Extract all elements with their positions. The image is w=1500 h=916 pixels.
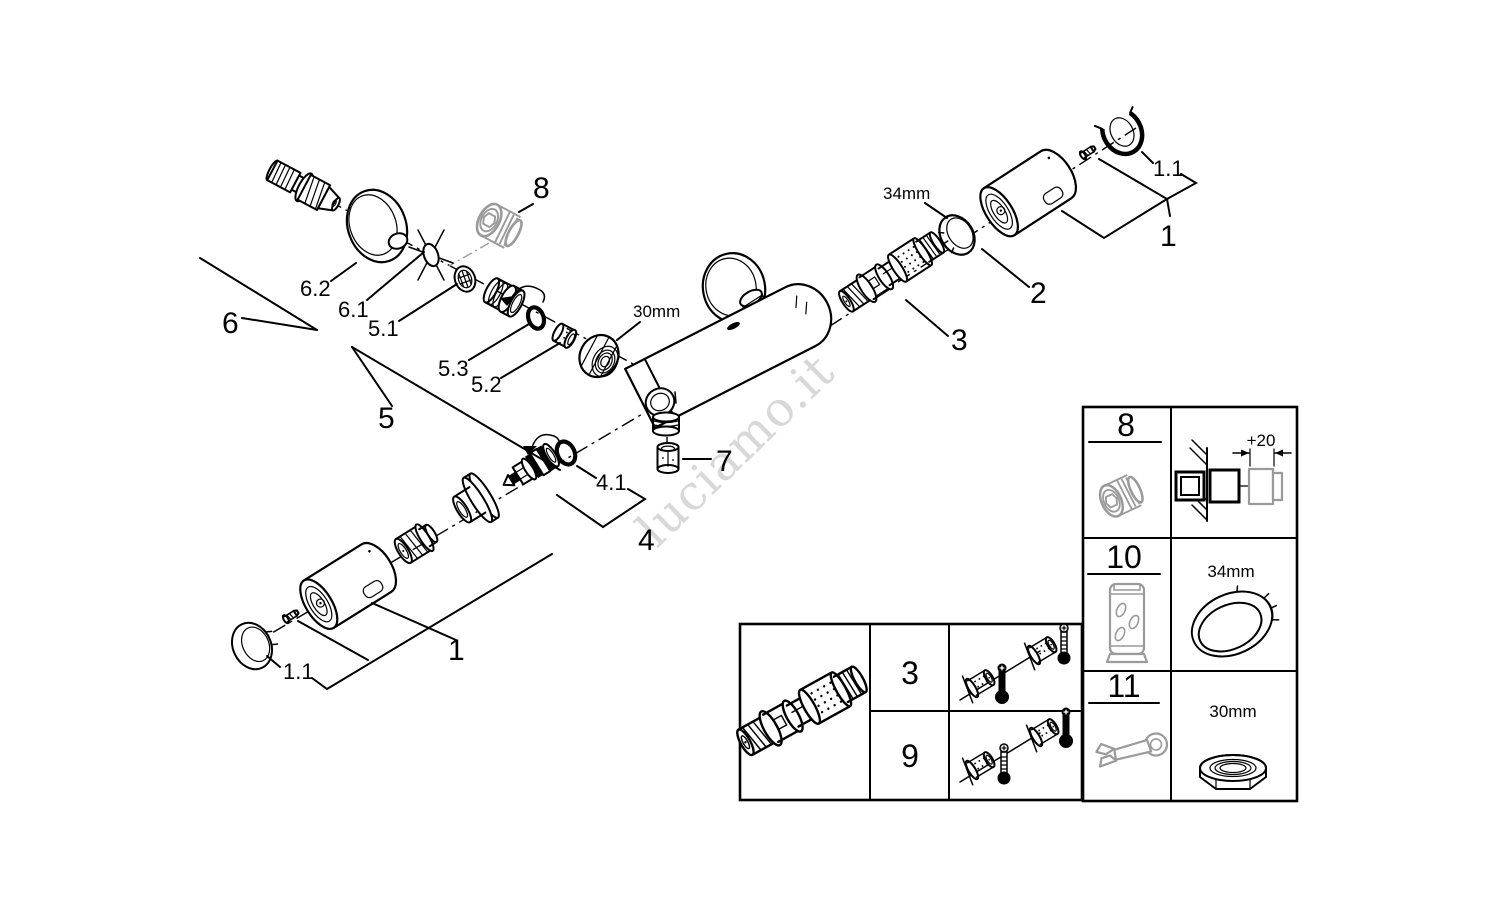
callout-2: 2 (1030, 277, 1047, 310)
tool-10-label: 10 (1106, 539, 1142, 575)
thermometer-cold-icon (1058, 624, 1071, 665)
open-end-wrench-icon (1095, 732, 1169, 767)
seal-cross-6-1 (409, 230, 453, 280)
s-union-6 (262, 155, 345, 219)
nut-size-30mm: 30mm (1209, 702, 1256, 721)
threaded-adapter-5 (480, 275, 528, 319)
cartridge-orientation-icon (1022, 712, 1063, 752)
dimension-plus20: +20 (1247, 431, 1276, 450)
tools-table: 8 +20 10 (1083, 407, 1297, 801)
extension-mounting-diagram: +20 (1176, 431, 1291, 521)
thermostat-cartridge-icon (732, 661, 872, 762)
dimension-34mm: 34mm (883, 184, 930, 203)
handle-screw-top (1079, 144, 1097, 160)
callout-6-1: 6.1 (338, 297, 369, 322)
dimension-30mm: 30mm (633, 302, 680, 321)
callout-4-1: 4.1 (596, 470, 627, 495)
callout-3: 3 (951, 324, 968, 357)
callout-1-bottom: 1 (448, 634, 465, 667)
callout-5-1: 5.1 (368, 316, 399, 341)
callout-1-1-bottom: 1.1 (283, 659, 314, 684)
thermometer-cold-icon (998, 744, 1011, 785)
thermostat-cartridge-3 (834, 227, 948, 317)
cap-bottom-1-1 (225, 614, 284, 676)
variant-9-diagram (958, 708, 1073, 785)
callout-7: 7 (716, 445, 733, 478)
o-ring-5-3 (525, 305, 547, 331)
cartridge-orientation-icon (1020, 630, 1061, 670)
diagram-canvas: luciamo.it (0, 0, 1500, 916)
check-valve-7 (658, 443, 679, 473)
thermometer-hot-icon (1059, 708, 1073, 749)
union-nut-30mm-icon (1200, 755, 1266, 789)
extension-fitting-icon (1096, 473, 1147, 520)
socket-size-34mm: 34mm (1207, 562, 1254, 581)
callout-6-2: 6.2 (300, 276, 331, 301)
union-nut-30mm (572, 328, 627, 384)
socket-tool-icon (1107, 584, 1147, 662)
variant-3-diagram (958, 624, 1070, 704)
callout-6: 6 (222, 307, 239, 340)
tool-8-label: 8 (1117, 407, 1135, 443)
callout-4: 4 (638, 524, 655, 557)
callout-1-top: 1 (1160, 220, 1177, 253)
callout-5-3: 5.3 (438, 356, 469, 381)
callout-5-2: 5.2 (471, 372, 502, 397)
handle-sleeve-top (973, 143, 1084, 242)
stop-ring-34mm-icon (1180, 575, 1288, 669)
exploded-parts-diagram: luciamo.it (0, 0, 1500, 916)
cartridge-variant-table: 3 9 (732, 624, 1082, 800)
callout-5: 5 (378, 402, 395, 435)
variant-9-label: 9 (901, 738, 919, 774)
callout-1-1-top: 1.1 (1153, 156, 1184, 181)
callout-8: 8 (533, 172, 550, 205)
handle-sleeve-bottom (293, 536, 404, 634)
tool-11-label: 11 (1107, 668, 1140, 704)
extension-part-8 (472, 200, 526, 251)
thermometer-hot-icon (995, 664, 1009, 705)
volume-escutcheon (444, 470, 503, 534)
knurled-adapter (391, 518, 443, 566)
variant-3-label: 3 (901, 655, 919, 691)
escutcheon-6-2 (337, 181, 417, 270)
